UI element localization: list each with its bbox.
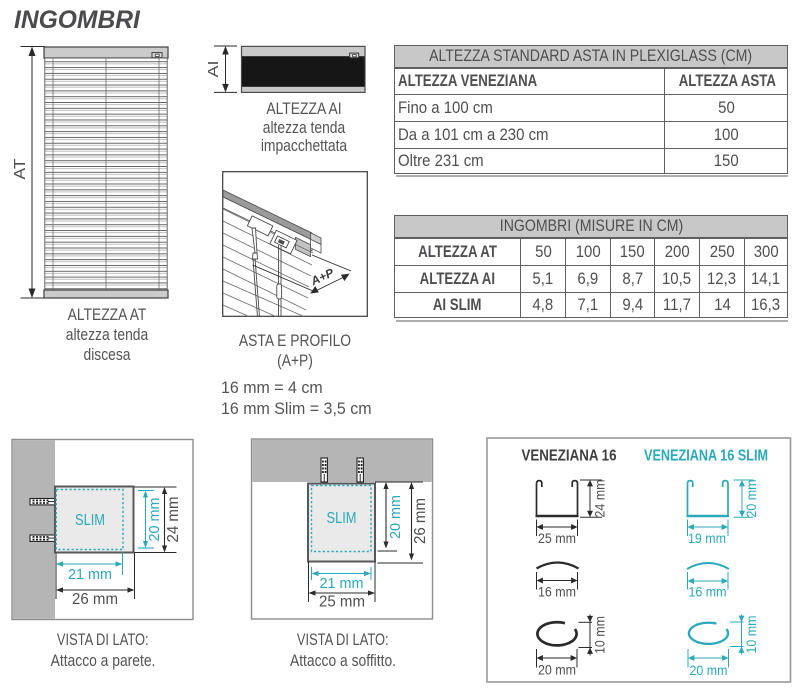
svg-text:25 mm: 25 mm (319, 594, 365, 611)
svg-text:26 mm: 26 mm (412, 498, 429, 544)
svg-text:10 mm: 10 mm (744, 616, 759, 654)
svg-text:20 mm: 20 mm (744, 480, 759, 518)
svg-text:10 mm: 10 mm (593, 616, 608, 654)
svg-text:25 mm: 25 mm (538, 531, 576, 546)
svg-text:19 mm: 19 mm (688, 531, 726, 546)
svg-text:21 mm: 21 mm (320, 575, 364, 592)
svg-text:SLIM: SLIM (327, 510, 357, 527)
svg-text:20 mm: 20 mm (387, 495, 404, 539)
svg-text:26 mm: 26 mm (72, 591, 118, 608)
svg-text:21 mm: 21 mm (68, 566, 112, 583)
svg-text:24 mm: 24 mm (593, 480, 608, 518)
svg-text:AT: AT (12, 158, 29, 179)
svg-text:16 mm: 16 mm (689, 585, 727, 600)
svg-text:20 mm: 20 mm (538, 663, 576, 678)
svg-text:24 mm: 24 mm (165, 497, 182, 543)
svg-text:AI: AI (205, 61, 222, 78)
svg-text:SLIM: SLIM (75, 512, 105, 529)
svg-text:20 mm: 20 mm (690, 663, 728, 678)
svg-text:VENEZIANA 16: VENEZIANA 16 (522, 448, 617, 465)
svg-text:VENEZIANA 16 SLIM: VENEZIANA 16 SLIM (644, 448, 768, 465)
svg-text:16 mm: 16 mm (538, 585, 576, 600)
svg-text:20 mm: 20 mm (146, 498, 163, 542)
